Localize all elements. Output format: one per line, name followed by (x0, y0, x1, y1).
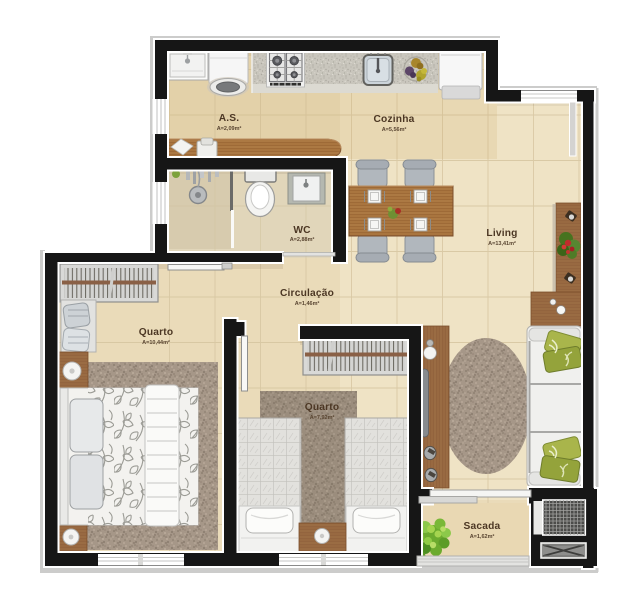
svg-text:A=7,92m²: A=7,92m² (310, 414, 335, 421)
svg-text:A=10,44m²: A=10,44m² (142, 339, 170, 346)
svg-text:Cozinha: Cozinha (373, 114, 414, 125)
svg-text:A.S.: A.S. (219, 113, 240, 124)
svg-text:Circulação: Circulação (280, 288, 334, 299)
svg-text:Quarto: Quarto (139, 327, 174, 338)
svg-text:WC: WC (293, 225, 311, 236)
svg-text:A=1,62m²: A=1,62m² (470, 533, 495, 540)
svg-text:A=2,88m²: A=2,88m² (290, 236, 315, 243)
svg-text:A=5,56m²: A=5,56m² (382, 126, 407, 133)
svg-text:A=13,41m²: A=13,41m² (488, 240, 516, 247)
svg-text:Living: Living (486, 228, 517, 239)
svg-text:Sacada: Sacada (464, 521, 501, 532)
svg-text:Quarto: Quarto (305, 402, 340, 413)
svg-text:A=2,09m²: A=2,09m² (217, 125, 242, 132)
svg-text:A=1,46m²: A=1,46m² (295, 300, 320, 307)
